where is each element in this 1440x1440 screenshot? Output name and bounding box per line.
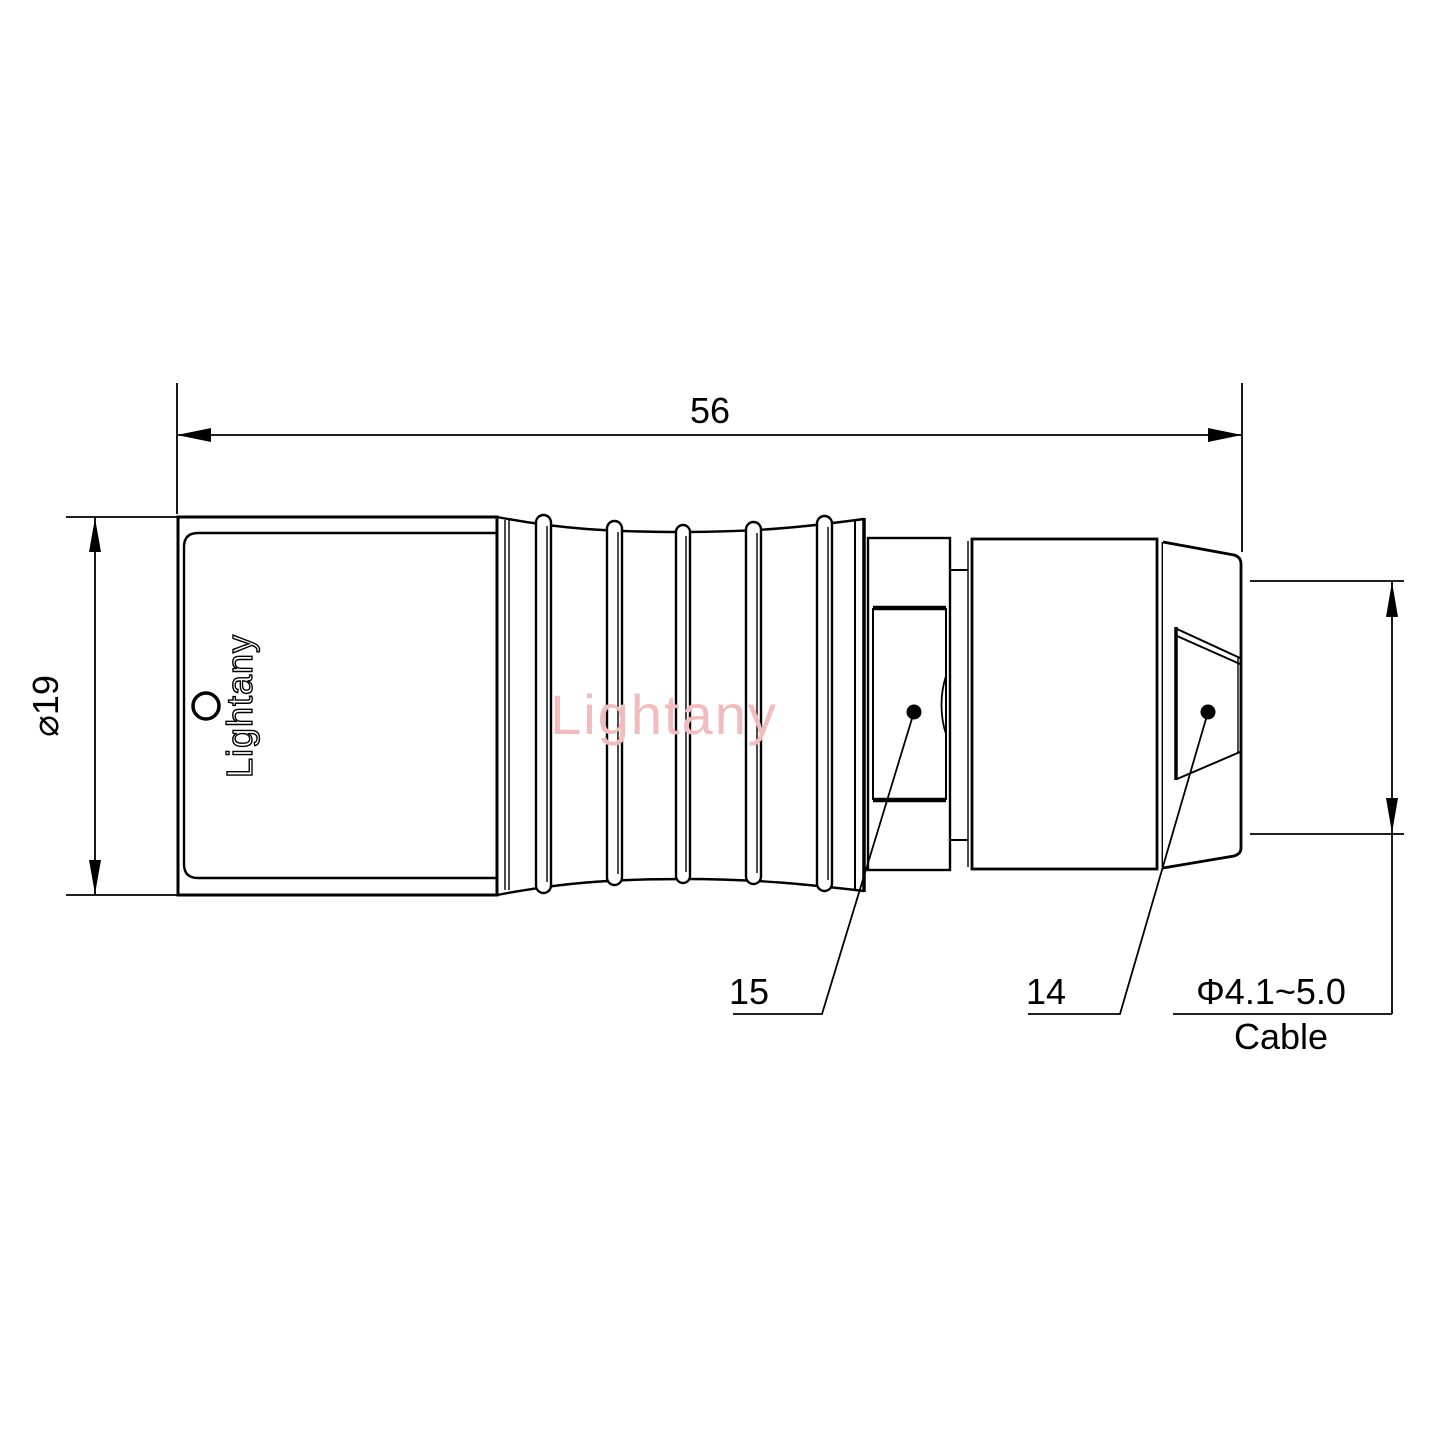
- connector-body: Lightany: [178, 517, 509, 895]
- brand-embossed-text: Lightany: [219, 634, 260, 778]
- callout-15-label: 15: [729, 971, 769, 1012]
- arrowhead-down-icon: [1386, 798, 1398, 833]
- connector-technical-drawing: 56 ⌀19 Φ4.1~5.0 Cable Lightany: [0, 0, 1440, 1440]
- arrowhead-left-icon: [177, 428, 211, 442]
- arrowhead-down-icon: [89, 860, 101, 894]
- rib-1: [536, 515, 551, 893]
- watermark-text: Lightany: [550, 683, 778, 746]
- arrowhead-right-icon: [1208, 428, 1242, 442]
- arrowhead-up-icon: [89, 518, 101, 552]
- coupling-nut-section: [968, 539, 1241, 869]
- cable-diameter-label: Φ4.1~5.0: [1196, 971, 1346, 1012]
- arrowhead-up-icon: [1386, 582, 1398, 617]
- collet-section: [868, 538, 968, 870]
- dim-length-label: 56: [690, 390, 730, 431]
- cable-label: Cable: [1234, 1016, 1328, 1057]
- callout-14-label: 14: [1026, 971, 1066, 1012]
- rib-5: [817, 516, 832, 891]
- nut-outline: [972, 539, 1157, 869]
- technical-drawing-page: 56 ⌀19 Φ4.1~5.0 Cable Lightany: [0, 0, 1440, 1440]
- dim-diameter-label: ⌀19: [25, 675, 66, 737]
- dimension-body-diameter: ⌀19: [25, 517, 180, 895]
